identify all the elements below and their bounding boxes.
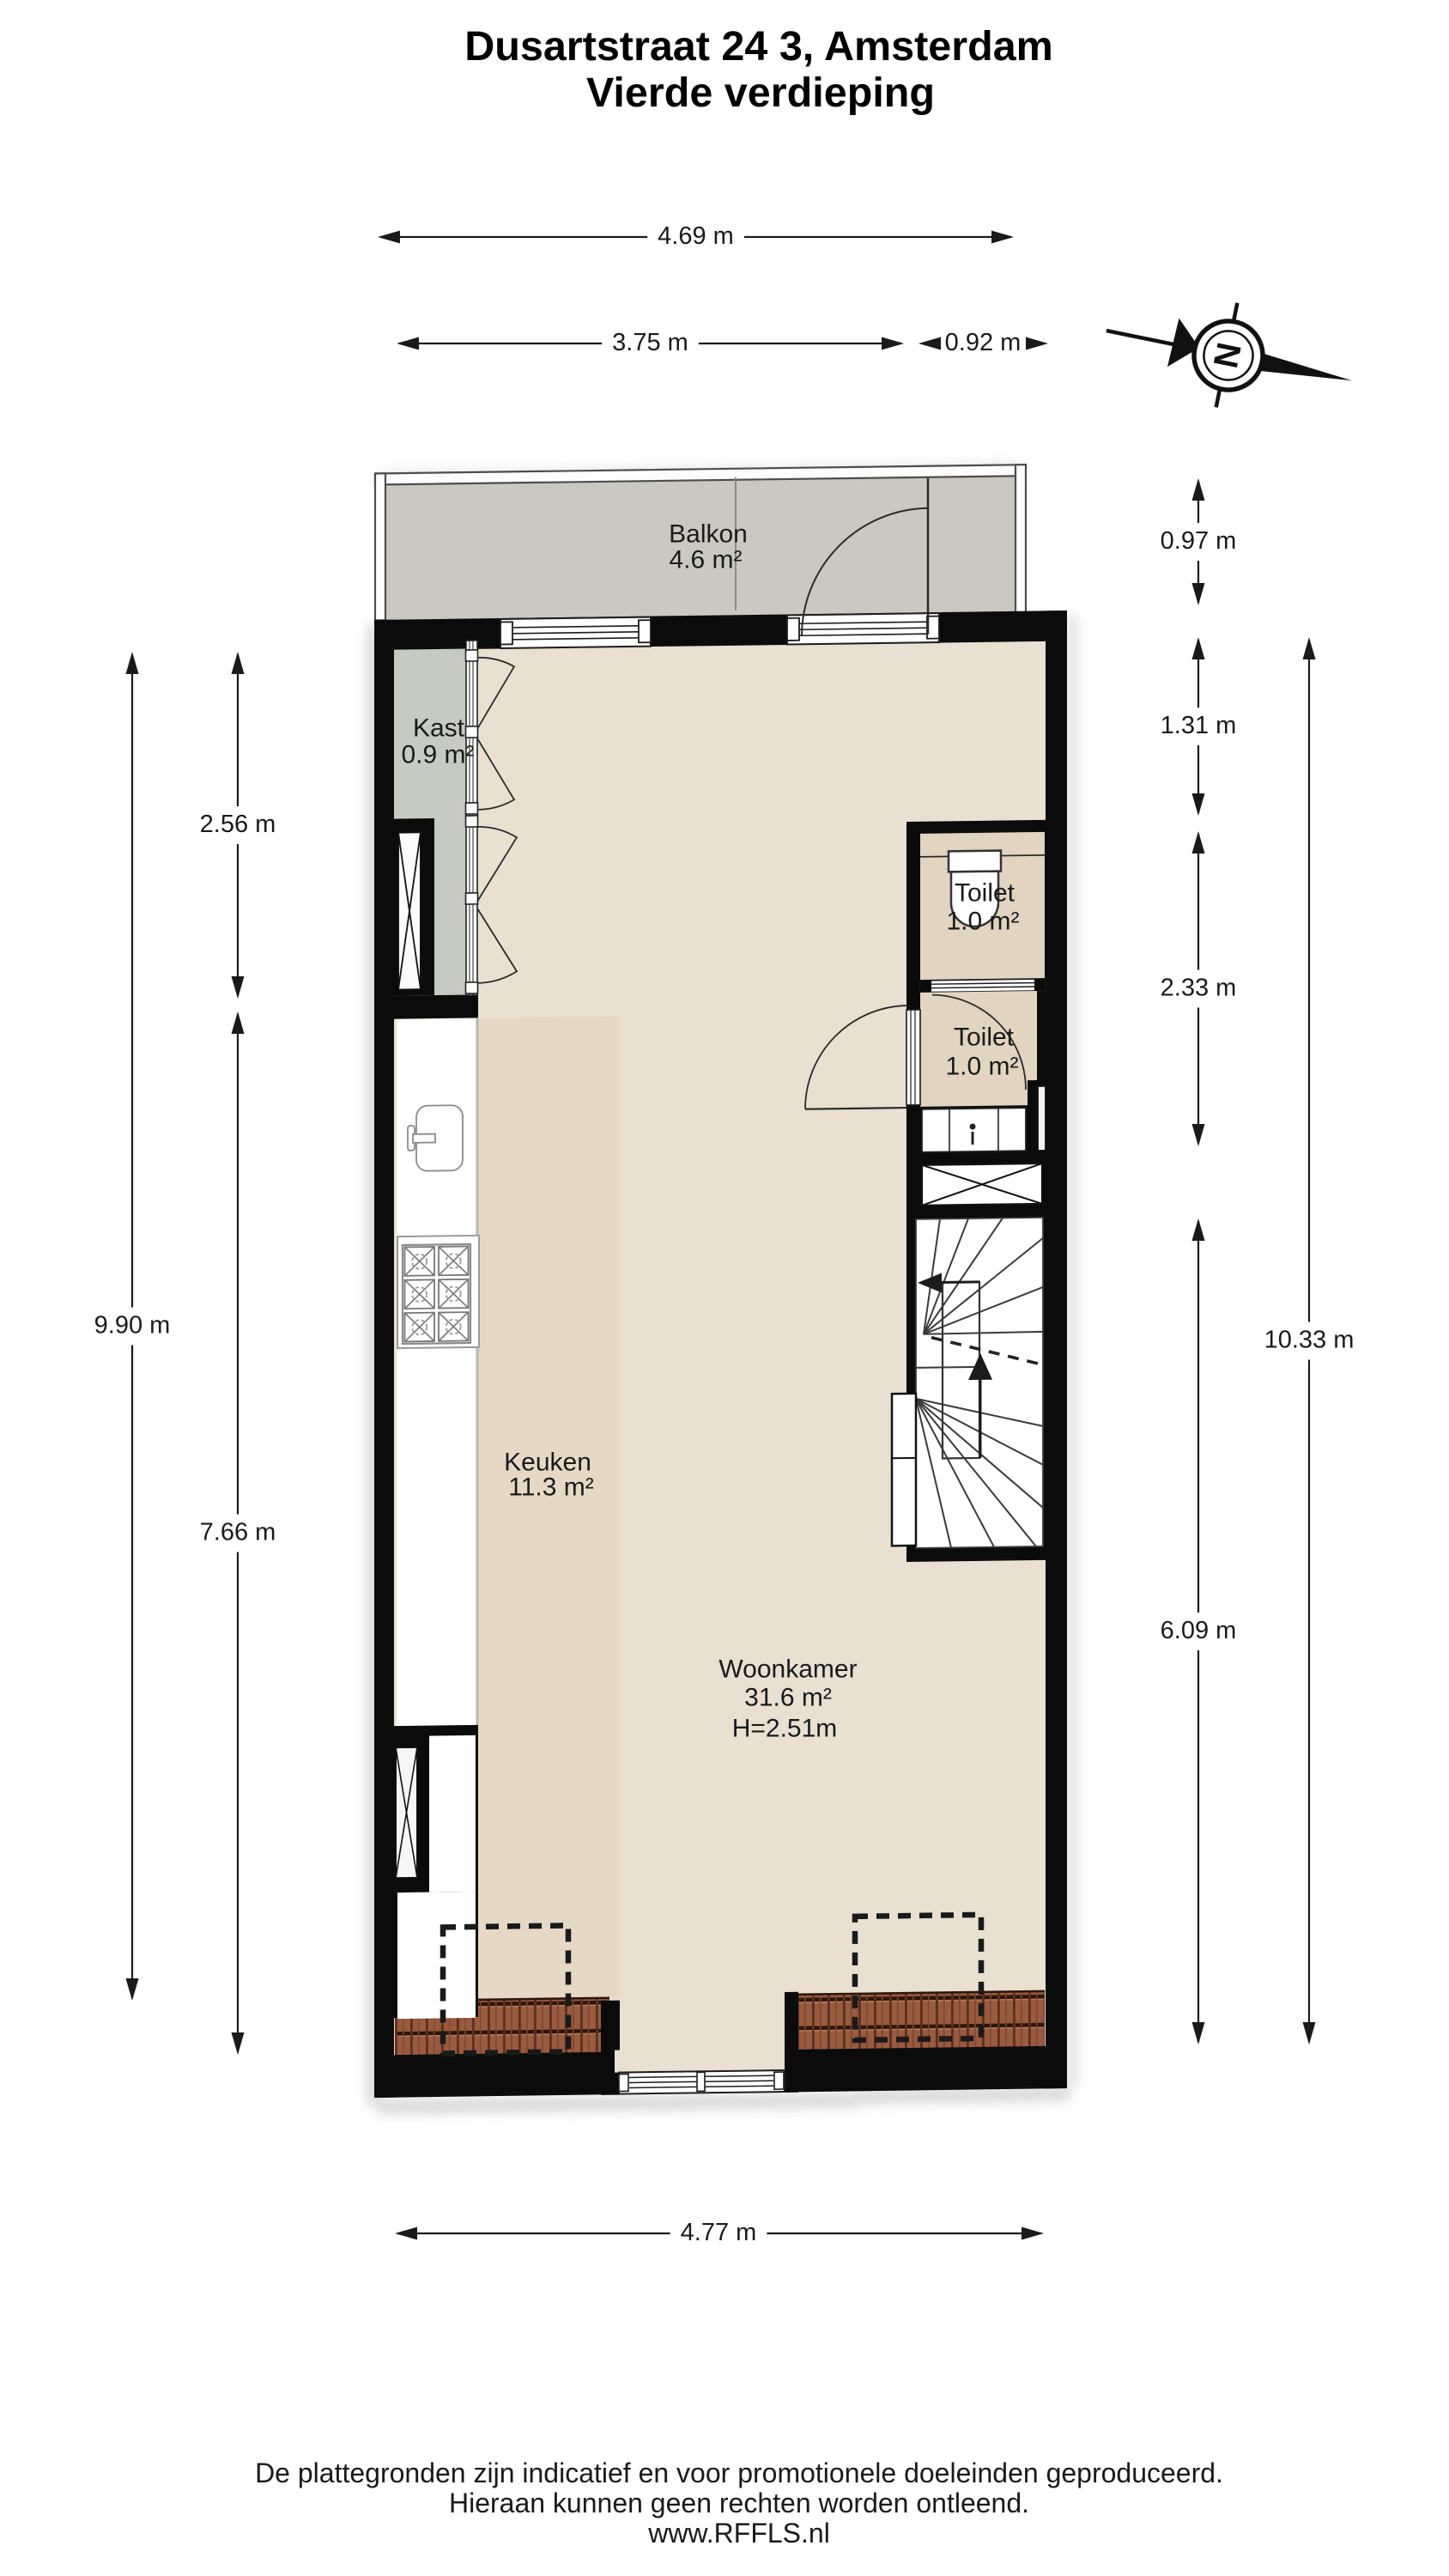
svg-text:6.09 m: 6.09 m xyxy=(1161,1617,1237,1644)
svg-text:1.31 m: 1.31 m xyxy=(1161,712,1237,739)
svg-text:4.6 m²: 4.6 m² xyxy=(669,546,742,574)
svg-text:31.6 m²: 31.6 m² xyxy=(744,1684,832,1712)
svg-text:10.33 m: 10.33 m xyxy=(1264,1327,1355,1354)
svg-text:De plattegronden zijn indicati: De plattegronden zijn indicatief en voor… xyxy=(255,2458,1223,2488)
svg-text:Toilet: Toilet xyxy=(954,1024,1015,1052)
svg-text:Woonkamer: Woonkamer xyxy=(718,1656,857,1684)
svg-text:1.0 m²: 1.0 m² xyxy=(945,1053,1018,1081)
svg-text:0.92 m: 0.92 m xyxy=(945,329,1022,356)
svg-text:7.66 m: 7.66 m xyxy=(200,1519,276,1546)
svg-text:1.0 m²: 1.0 m² xyxy=(946,908,1019,936)
svg-text:0.9 m²: 0.9 m² xyxy=(401,741,474,769)
svg-text:Dusartstraat 24 3, Amsterdam: Dusartstraat 24 3, Amsterdam xyxy=(464,23,1053,70)
svg-text:0.97 m: 0.97 m xyxy=(1161,527,1237,555)
svg-text:4.69 m: 4.69 m xyxy=(658,222,734,250)
svg-text:Balkon: Balkon xyxy=(669,520,748,549)
svg-text:Toilet: Toilet xyxy=(955,879,1016,908)
svg-text:www.RFFLS.nl: www.RFFLS.nl xyxy=(647,2518,830,2549)
svg-text:Hieraan kunnen geen rechten wo: Hieraan kunnen geen rechten worden ontle… xyxy=(449,2488,1029,2518)
svg-text:Vierde verdieping: Vierde verdieping xyxy=(586,70,935,116)
svg-text:Kast: Kast xyxy=(413,714,465,743)
svg-text:2.56 m: 2.56 m xyxy=(200,811,276,838)
svg-text:2.33 m: 2.33 m xyxy=(1161,975,1237,1002)
svg-text:H=2.51m: H=2.51m xyxy=(732,1715,838,1743)
svg-text:9.90 m: 9.90 m xyxy=(94,1312,171,1340)
svg-text:11.3 m²: 11.3 m² xyxy=(508,1473,593,1502)
svg-text:3.75 m: 3.75 m xyxy=(612,329,688,356)
svg-text:4.77 m: 4.77 m xyxy=(681,2219,757,2246)
